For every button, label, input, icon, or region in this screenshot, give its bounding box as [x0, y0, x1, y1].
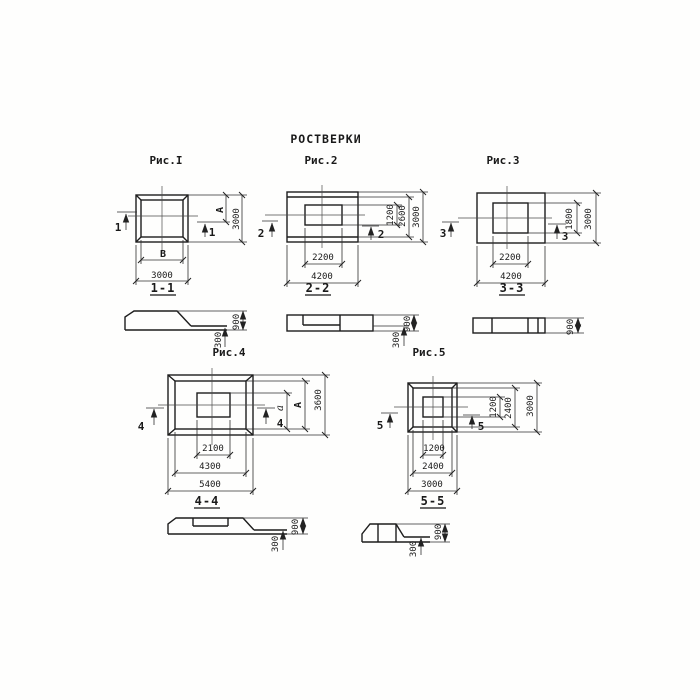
cut-digit: 3 [562, 230, 569, 243]
sec-dim-900: 900 [566, 319, 576, 335]
dim-1800: 1800 [565, 208, 575, 230]
dim-5400: 5400 [199, 480, 221, 490]
figure-5-plan-outline [408, 383, 457, 432]
sec-dim-900: 900 [434, 524, 444, 540]
figure-1-label: Рис.I [149, 154, 182, 167]
cut-digit: 2 [258, 227, 265, 240]
dim-letter-B: В [160, 249, 166, 260]
figure-5-label: Рис.5 [412, 346, 445, 359]
dim-3000: 3000 [584, 208, 594, 230]
dim-3000: 3000 [421, 480, 443, 490]
dim-2100: 2100 [202, 444, 224, 454]
figure-2: Рис.2 2 2 2200 4200 1200 2600 30 [258, 154, 428, 348]
dim-3000-right: 3000 [232, 208, 242, 230]
dim-3000: 3000 [412, 206, 422, 228]
sheet-title: РОСТВЕРКИ [290, 132, 361, 146]
section-1-1-label: 1-1 [151, 281, 176, 295]
dim-2200: 2200 [499, 253, 521, 263]
dim-3000-bottom: 3000 [151, 271, 173, 281]
drawing-canvas: РОСТВЕРКИ Рис.I 1 1 В 3000 А 3000 [0, 0, 700, 700]
cut-digit: 5 [377, 419, 384, 432]
figure-3-label: Рис.3 [486, 154, 519, 167]
cut-digit: 2 [378, 228, 385, 241]
section-4-4-view: 300 900 [168, 518, 308, 552]
sec-dim-300: 300 [409, 541, 419, 557]
dim-letter-a-small: а [275, 405, 286, 411]
cut-digit: 5 [478, 420, 485, 433]
figure-5: Рис.5 5 5 1200 2400 3000 [362, 346, 542, 557]
figure-1-dimensions: В 3000 А 3000 [136, 195, 247, 285]
section-2-2-view: 300 900 [287, 315, 419, 348]
drawing-sheet: РОСТВЕРКИ Рис.I 1 1 В 3000 А 3000 [0, 0, 700, 700]
dim-letter-A: А [293, 402, 304, 408]
sec-dim-900: 900 [291, 519, 301, 535]
section-5-5-label: 5-5 [421, 494, 446, 508]
figure-5-dimensions: 1200 2400 3000 1200 2400 3000 [408, 383, 542, 495]
figure-5-cut-marks: 5 5 [377, 413, 485, 433]
section-1-1-view: 300 900 [125, 311, 247, 348]
dim-1200: 1200 [423, 444, 445, 454]
dim-2200: 2200 [312, 253, 334, 263]
figure-3-centerlines [458, 186, 552, 249]
section-3-3-view: 900 [473, 318, 584, 335]
figure-3-dimensions: 2200 4200 1800 3000 [477, 193, 601, 287]
cut-digit: 3 [440, 227, 447, 240]
section-3-3-label: 3-3 [500, 281, 525, 295]
dim-4300: 4300 [199, 462, 221, 472]
dim-3600: 3600 [314, 389, 324, 411]
section-5-5-view: 300 900 [362, 524, 450, 557]
cut-digit: 1 [115, 221, 122, 234]
dim-2400: 2400 [422, 462, 444, 472]
cut-digit: 1 [209, 226, 216, 239]
dim-2600: 2600 [398, 205, 408, 227]
figure-2-centerlines [265, 185, 365, 248]
dim-letter-A: А [215, 207, 226, 213]
cut-digit: 4 [138, 420, 145, 433]
sec-dim-900: 900 [232, 314, 242, 330]
section-4-4-label: 4-4 [195, 494, 220, 508]
figure-1: Рис.I 1 1 В 3000 А 3000 1-1 [115, 154, 247, 348]
dim-1200: 1200 [386, 204, 396, 226]
sec-dim-300: 300 [271, 536, 281, 552]
figure-2-cut-marks: 2 2 [258, 221, 385, 241]
sec-dim-900: 900 [403, 316, 413, 332]
dim-3000-right: 3000 [526, 395, 536, 417]
figure-4: Рис.4 4 4 2100 4300 5400 [138, 346, 330, 552]
section-2-2-label: 2-2 [306, 281, 331, 295]
dim-1200-right: 1200 [489, 396, 499, 418]
figure-2-plan-outline [287, 192, 358, 242]
figure-2-label: Рис.2 [304, 154, 337, 167]
figure-3: Рис.3 3 3 2200 4200 1800 3000 3-3 [440, 154, 601, 335]
figure-4-label: Рис.4 [212, 346, 245, 359]
sec-dim-300: 300 [392, 332, 402, 348]
cut-digit: 4 [277, 417, 284, 430]
dim-2400-right: 2400 [504, 397, 514, 419]
